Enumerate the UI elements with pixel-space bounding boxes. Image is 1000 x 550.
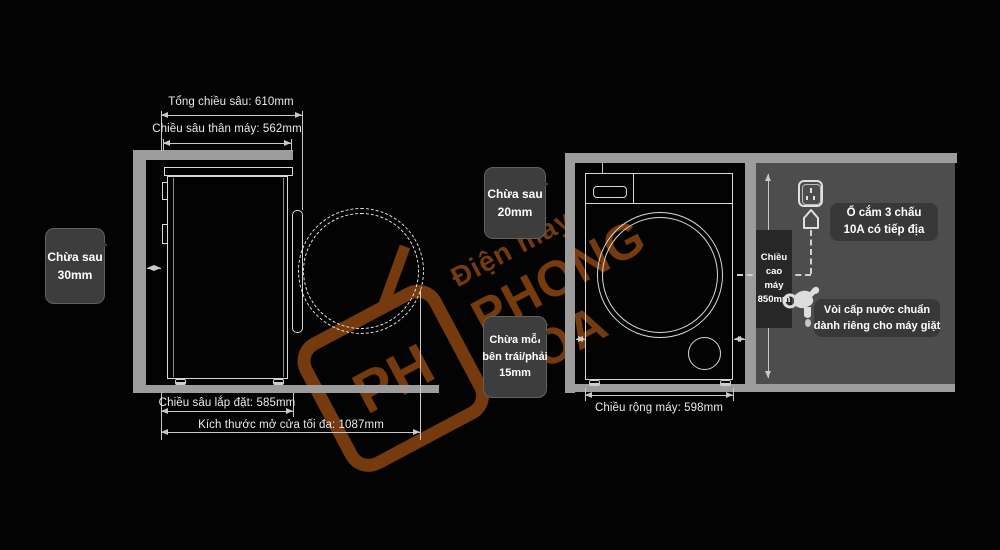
rear-hose-connector: [162, 224, 168, 244]
label-line: 10A có tiếp địa: [844, 222, 925, 239]
rear-hose-connector: [162, 182, 168, 200]
machine-foot: [720, 380, 731, 386]
badge-line: cao: [766, 265, 782, 279]
machine-foot: [589, 380, 600, 386]
socket-label: Ổ cắm 3 chấu 10A có tiếp địa: [830, 203, 938, 241]
dim-tick: [291, 139, 292, 151]
callout-rear-30mm: Chừa sau 30mm: [45, 228, 105, 304]
front-floor: [565, 384, 955, 392]
dim-body-depth-arrow: [163, 143, 291, 144]
side-wall-left: [133, 150, 146, 393]
badge-line: Chiều: [761, 251, 787, 265]
machine-lid: [164, 167, 293, 176]
brand-logo-text: PH: [342, 330, 445, 427]
side-wall-top: [133, 150, 293, 160]
dim-body-depth-label: Chiều sâu thân máy: 562mm: [152, 123, 302, 135]
dim-tick: [302, 111, 303, 210]
callout-beak: [535, 176, 557, 192]
faucet-label: Vòi cấp nước chuẩn dành riêng cho máy gi…: [814, 299, 940, 337]
dim-door-open-arrow: [161, 432, 420, 433]
machine-side-body: [167, 176, 288, 379]
control-panel-line: [585, 203, 733, 204]
dim-width-label: Chiều rộng máy: 598mm: [595, 402, 723, 414]
label-line: Ổ cắm 3 chấu: [847, 205, 922, 222]
front-wall-top: [565, 153, 957, 163]
gap-30mm-arrow: [147, 268, 161, 269]
gap-15mm-right-arrow: [734, 339, 745, 340]
machine-back-inner-line: [173, 178, 174, 377]
callout-line: Chừa mỗi: [489, 332, 540, 349]
callout-line: 15mm: [499, 365, 531, 382]
dim-door-open-label: Kích thước mở cửa tối đa: 1087mm: [198, 419, 384, 431]
front-wall-left: [565, 153, 575, 393]
callout-line: 20mm: [498, 203, 533, 221]
display-window: [593, 186, 627, 198]
callout-line: bên trái/phải: [482, 349, 547, 366]
door-swing-circle-inner: [303, 213, 419, 329]
machine-front-inner-line: [283, 178, 284, 377]
dim-tick: [733, 388, 734, 401]
gap-20mm-tick: [602, 163, 603, 173]
machine-foot: [273, 379, 284, 385]
dim-total-depth-label: Tổng chiều sâu: 610mm: [168, 96, 293, 108]
dim-width-arrow: [585, 395, 733, 396]
front-wall-divider: [745, 163, 756, 391]
dim-install-depth-arrow: [161, 411, 293, 412]
power-socket-icon: [798, 180, 823, 207]
machine-foot: [175, 379, 186, 385]
dim-tick: [420, 290, 421, 440]
dim-tick: [163, 139, 164, 151]
callout-line: 30mm: [58, 266, 93, 284]
dim-total-depth-arrow: [161, 115, 302, 116]
label-line: dành riêng cho máy giặt: [814, 318, 941, 335]
plug-icon: [802, 208, 820, 230]
filter-cover: [688, 337, 721, 370]
gap-15mm-left-arrow: [576, 339, 585, 340]
installation-diagram: PH Điện máy PHONG HÒA Tổng chiều sâu: 61…: [0, 0, 1000, 550]
callout-beak: [536, 325, 558, 341]
callout-sides-15mm: Chừa mỗi bên trái/phải 15mm: [483, 316, 547, 398]
guide-dash-vertical: [810, 230, 812, 274]
callout-top-20mm: Chừa sau 20mm: [484, 167, 546, 239]
dim-install-depth-label: Chiều sâu lắp đặt: 585mm: [159, 397, 296, 409]
callout-beak: [94, 237, 116, 253]
side-floor: [133, 385, 439, 393]
drum-door-inner: [602, 217, 718, 333]
panel-divider-line: [633, 173, 634, 203]
label-line: Vòi cấp nước chuẩn: [824, 302, 930, 319]
